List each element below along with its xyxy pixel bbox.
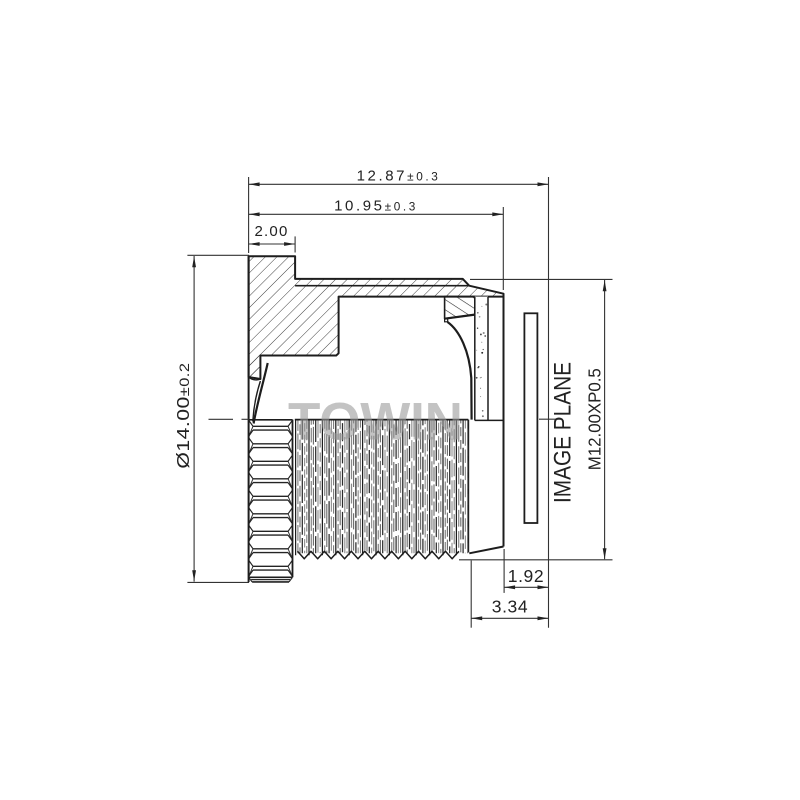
svg-text:10.95±0.3: 10.95±0.3 <box>334 197 418 214</box>
svg-text:12.87±0.3: 12.87±0.3 <box>357 167 441 184</box>
svg-text:1.92: 1.92 <box>508 566 544 586</box>
svg-text:Ø14.00±0.2: Ø14.00±0.2 <box>173 363 193 469</box>
svg-text:3.34: 3.34 <box>492 597 528 617</box>
svg-text:2.00: 2.00 <box>255 223 289 240</box>
svg-text:M12.00XP0.5: M12.00XP0.5 <box>585 368 605 470</box>
svg-text:TOWIN: TOWIN <box>288 393 463 452</box>
svg-text:IMAGE PLANE: IMAGE PLANE <box>550 362 577 503</box>
